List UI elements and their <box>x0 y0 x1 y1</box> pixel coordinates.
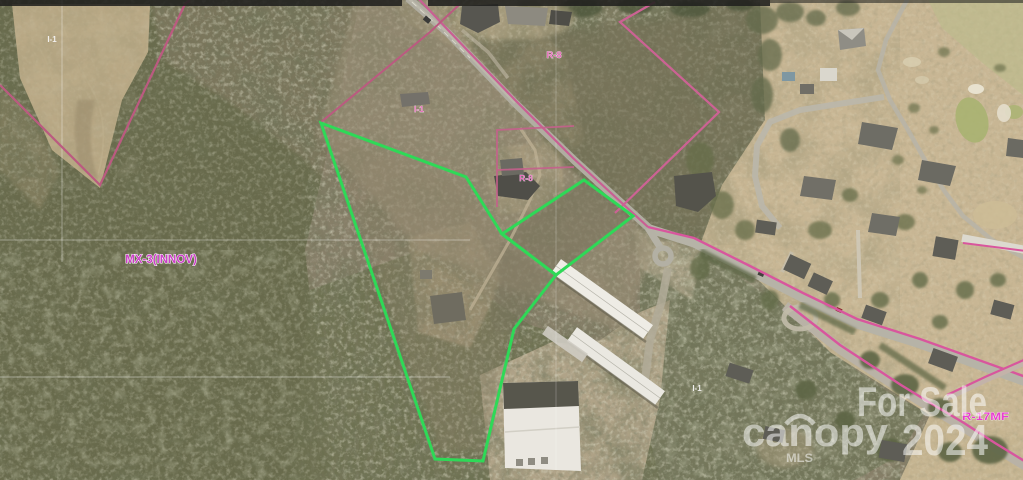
svg-text:MX-3(INNOV): MX-3(INNOV) <box>125 254 197 266</box>
svg-text:I-1: I-1 <box>47 35 57 44</box>
svg-text:canopy: canopy <box>742 411 889 455</box>
svg-text:R-8: R-8 <box>519 173 533 183</box>
svg-text:MLS: MLS <box>786 453 813 465</box>
svg-text:I-1: I-1 <box>692 384 702 393</box>
svg-text:R-8: R-8 <box>546 50 561 61</box>
svg-text:2024: 2024 <box>902 416 988 465</box>
svg-text:I-1: I-1 <box>414 104 424 114</box>
